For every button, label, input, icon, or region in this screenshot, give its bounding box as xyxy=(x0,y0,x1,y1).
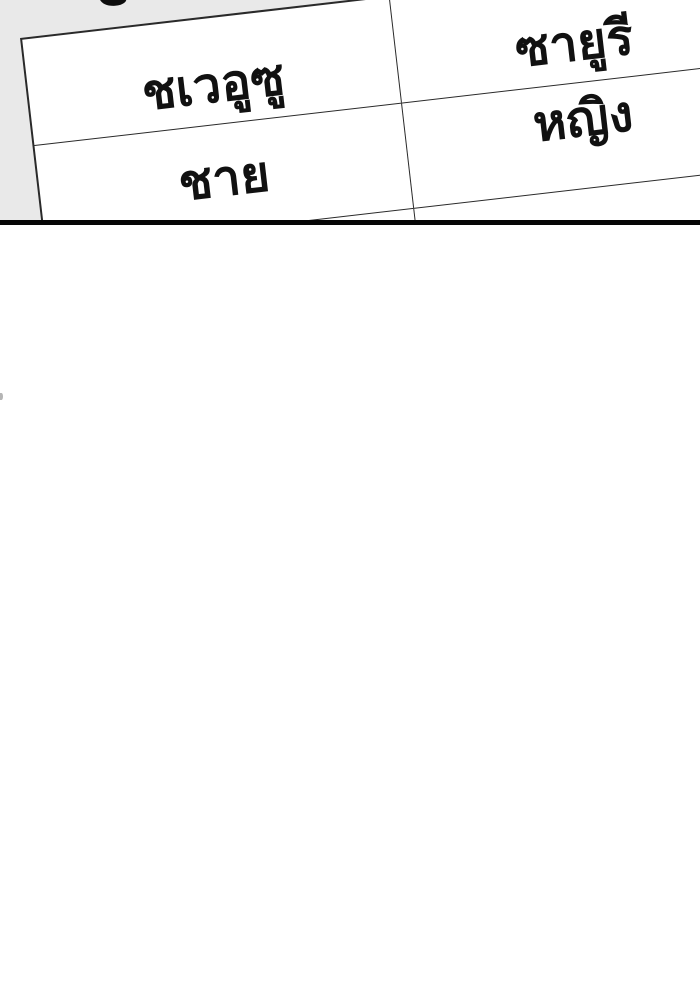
comic-panel-top: ชเวอูซู ซายูรี ชาย หญิง xyxy=(0,0,700,222)
screenshot-root: ชเวอูซู ซายูรี ชาย หญิง xyxy=(0,0,700,1000)
cell-text-name-left: ชเวอูซู xyxy=(139,50,287,121)
panel-border-line xyxy=(0,220,700,225)
cell-text-gender-right: หญิง xyxy=(530,86,636,152)
cell-text-name-right: ซายูรี xyxy=(512,9,636,77)
character-info-table: ชเวอูซู ซายูรี ชาย หญิง xyxy=(20,0,700,222)
edge-speck xyxy=(0,393,3,400)
cropped-glyph-fragment xyxy=(98,0,126,8)
cell-text-gender-left: ชาย xyxy=(176,146,273,211)
